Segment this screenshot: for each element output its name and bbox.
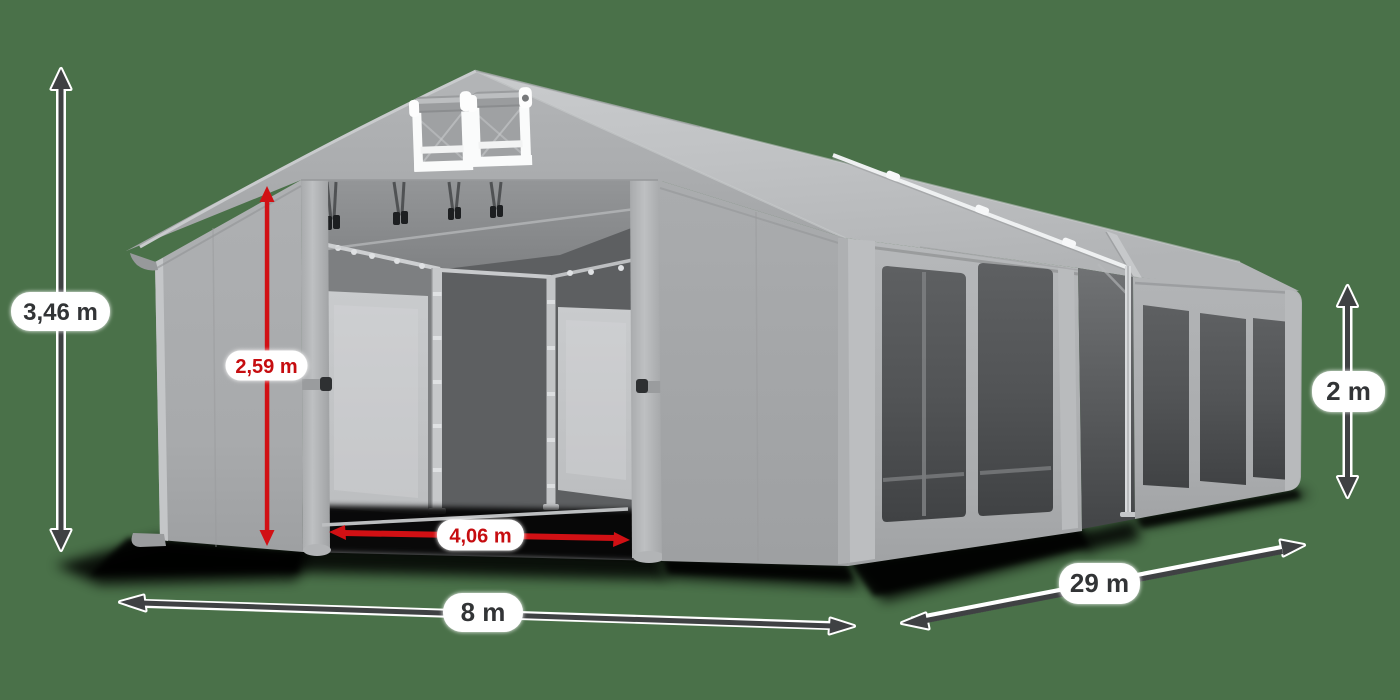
svg-text:4,06 m: 4,06 m — [449, 526, 511, 548]
svg-text:2 m: 2 m — [1326, 376, 1371, 406]
svg-text:8 m: 8 m — [461, 597, 506, 627]
svg-text:29 m: 29 m — [1070, 568, 1129, 598]
svg-text:2,59 m: 2,59 m — [235, 356, 297, 378]
svg-text:3,46 m: 3,46 m — [23, 299, 98, 326]
